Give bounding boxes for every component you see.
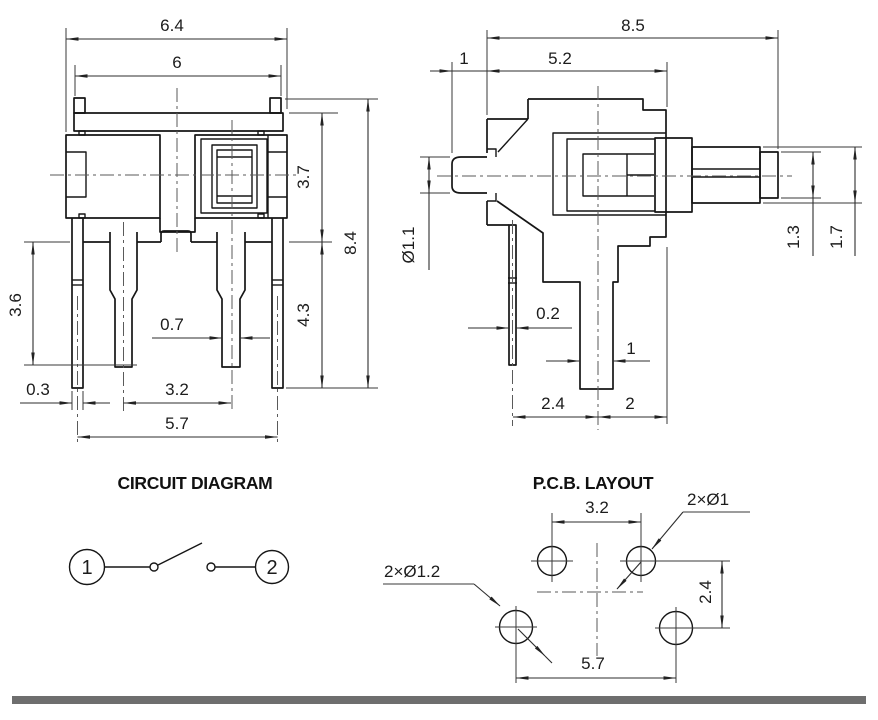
side-dimensions: 8.5 1 5.2 Ø1.1 0.2 1 2.4 2 1.3 1.7: [399, 16, 862, 424]
pcb-dimensions: 3.2 2.4 5.7 2×Ø1 2×Ø1.2: [383, 490, 750, 678]
dim-label-0-7: 0.7: [160, 315, 184, 334]
plunger-shaft: [692, 147, 760, 203]
front-dimensions: 6.4 6 3.7 4.3 8.4 3.6 0.3 3.2 5.7 0.7: [6, 16, 378, 437]
boss-tab-lower: [487, 193, 496, 201]
plunger-tip: [760, 152, 778, 198]
dim-label-3-7: 3.7: [294, 165, 313, 189]
dim-label-8-5: 8.5: [621, 16, 645, 35]
dim-label-2-4: 2.4: [541, 394, 565, 413]
actuator: [452, 157, 487, 193]
push-button: [212, 145, 257, 208]
button-housing: [195, 135, 287, 218]
corner-notch: [79, 214, 85, 218]
dim-label-2: 2: [625, 394, 634, 413]
contact-left: [150, 563, 158, 571]
dim-label-3-6: 3.6: [6, 293, 25, 317]
body-block-left: [66, 135, 160, 218]
boss-tab-upper: [487, 149, 496, 157]
dim-label-0-2: 0.2: [536, 304, 560, 323]
dim-label-8-4: 8.4: [341, 231, 360, 255]
switch-body-side: [452, 99, 778, 389]
plunger-base: [655, 138, 692, 212]
dim-label-6: 6: [172, 53, 181, 72]
side-centerlines: [437, 86, 792, 430]
mechanism-frame: [553, 133, 666, 215]
top-flange: [74, 113, 283, 131]
terminal-number-2: 2: [266, 557, 277, 579]
circuit-diagram: CIRCUIT DIAGRAM 1 2: [70, 473, 289, 585]
dim-label-pcb-2-4: 2.4: [696, 580, 715, 604]
dim-label-0-3: 0.3: [26, 380, 50, 399]
terminal-pin-inner-right: [217, 232, 245, 367]
dim-label-1-protrusion: 1: [459, 49, 468, 68]
section-title-pcb: P.C.B. LAYOUT: [533, 473, 654, 493]
dim-label-3-2: 3.2: [165, 380, 189, 399]
mounting-tab-right: [270, 98, 281, 113]
contact-right: [207, 563, 215, 571]
section-title-circuit: CIRCUIT DIAGRAM: [118, 473, 273, 493]
dim-label-5-7: 5.7: [165, 414, 189, 433]
footer-bar: [12, 696, 866, 704]
dim-label-5-2: 5.2: [548, 49, 572, 68]
chamfer-edge: [498, 119, 528, 152]
dim-label-4-3: 4.3: [294, 303, 313, 327]
terminal-number-1: 1: [81, 557, 92, 579]
hole-label-2xd1: 2×Ø1: [687, 490, 729, 509]
dim-label-6-4: 6.4: [160, 16, 184, 35]
switch-lever: [158, 543, 202, 565]
corner-notch: [79, 131, 85, 135]
pcb-layout: P.C.B. LAYOUT: [383, 473, 750, 683]
side-view: 8.5 1 5.2 Ø1.1 0.2 1 2.4 2 1.3 1.7: [399, 16, 862, 430]
push-button-top: [217, 150, 252, 203]
front-view: 6.4 6 3.7 4.3 8.4 3.6 0.3 3.2 5.7 0.7: [6, 16, 378, 445]
dim-label-1-3: 1.3: [784, 225, 803, 249]
dim-label-pcb-3-2: 3.2: [585, 498, 609, 517]
dim-label-1-pin: 1: [626, 339, 635, 358]
dim-label-dia-1-1: Ø1.1: [399, 227, 418, 264]
hole-label-2xd1-2: 2×Ø1.2: [384, 562, 440, 581]
engineering-drawing: 6.4 6 3.7 4.3 8.4 3.6 0.3 3.2 5.7 0.7: [0, 0, 878, 720]
mounting-tab-left: [74, 98, 85, 113]
body-outline: [497, 99, 666, 389]
dim-label-pcb-5-7: 5.7: [581, 654, 605, 673]
dim-label-1-7: 1.7: [827, 225, 846, 249]
